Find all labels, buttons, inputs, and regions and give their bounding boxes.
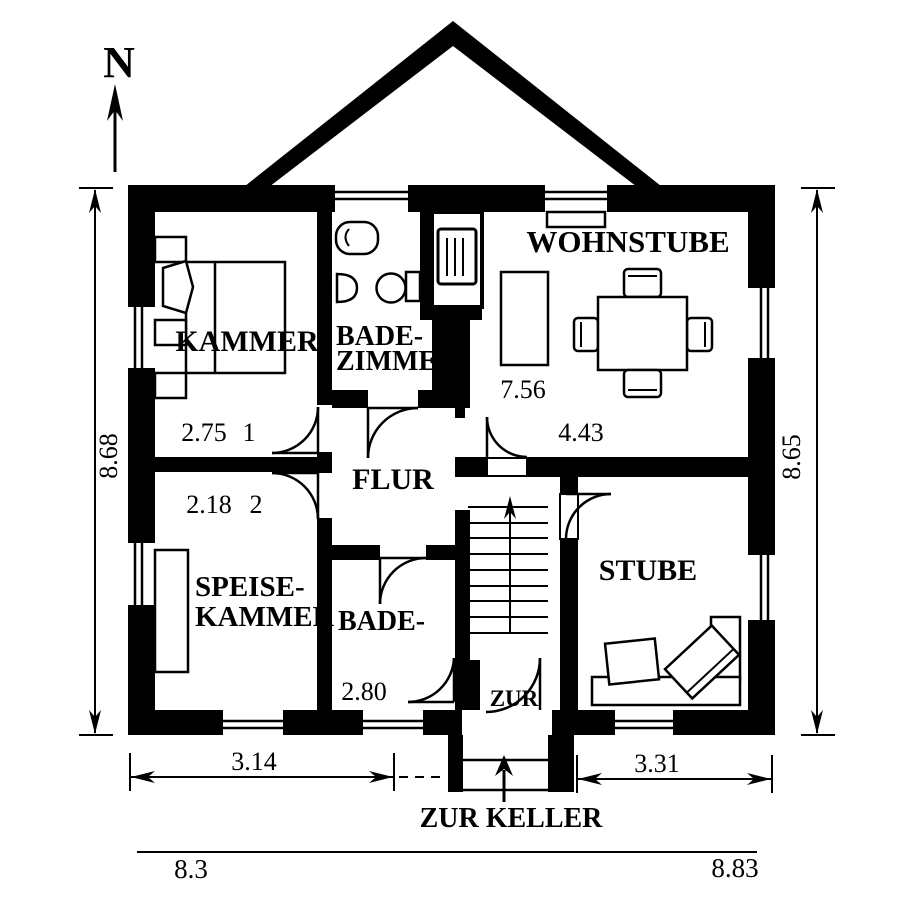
dim-bottom-right: 3.31: [634, 749, 680, 778]
label-stube: STUBE: [599, 554, 697, 587]
dim-right-height: 8.65: [777, 434, 806, 480]
chair-top: [624, 269, 661, 297]
porch: [448, 735, 574, 802]
label-speisekammer-1: SPEISE-: [195, 571, 305, 603]
window-right-wohnstube: [748, 288, 775, 358]
bath-cabinet: [406, 272, 420, 301]
pillow: [163, 261, 193, 313]
dim-bade: 2.80: [341, 677, 387, 706]
bathroom-fixtures: [336, 222, 420, 303]
door-badezimmer: [368, 408, 418, 458]
room-dimensions: 2.75 1 2.18 2 7.56 4.43 2.80: [181, 375, 604, 706]
door-speisekammer: [272, 473, 318, 519]
label-speisekammer-2: KAMMER: [195, 601, 335, 633]
toilet: [337, 274, 357, 302]
dim-line-bottom-left: [130, 753, 447, 791]
label-kammer: KAMMER: [175, 325, 319, 358]
tile-stove: [432, 212, 482, 307]
nightstand: [155, 237, 186, 262]
speisekammer-shelf: [155, 550, 188, 672]
dim-line-right: [801, 188, 835, 735]
dim-wohnstube-a: 7.56: [500, 375, 546, 404]
dim-bottom-left: 3.14: [231, 747, 277, 776]
window-right-stube: [748, 555, 775, 620]
sink: [377, 274, 406, 303]
chair-bottom: [624, 370, 661, 397]
window-bottom-stube: [615, 710, 673, 735]
label-zur-keller: ZUR KELLER: [420, 803, 604, 834]
dim-overall-left: 8.3: [174, 854, 208, 884]
label-wohnstube: WOHNSTUBE: [526, 224, 729, 259]
dim-kammer: 2.75: [181, 418, 227, 447]
window-top-wohnstube: [545, 185, 607, 227]
chair-right: [687, 318, 712, 351]
north-label: N: [103, 38, 135, 87]
window-top-bath: [335, 185, 408, 212]
north-arrow: N: [103, 38, 135, 172]
dim-overall-right: 8.83: [711, 853, 758, 883]
chair-left: [574, 318, 598, 351]
num-speisekammer: 2: [250, 490, 263, 519]
roof-gable: [240, 21, 666, 190]
dim-left-height: 8.68: [94, 433, 123, 479]
door-wohnstube: [487, 417, 527, 457]
bathtub: [336, 222, 378, 254]
staircase: [468, 496, 548, 633]
window-bottom-speisekammer: [223, 710, 283, 735]
dim-wohnstube-b: 4.43: [558, 418, 604, 447]
sideboard: [501, 272, 548, 365]
label-bade: BADE-: [338, 606, 425, 637]
dim-speisekammer: 2.18: [186, 490, 232, 519]
floorplan-drawing: N: [0, 0, 900, 900]
dining-table: [598, 297, 687, 370]
nightstand: [155, 373, 186, 398]
window-left-kammer: [128, 307, 155, 368]
stube-furniture: [592, 617, 740, 705]
label-badezimmer-2: ZIMMER: [336, 346, 458, 377]
door-kammer: [272, 407, 318, 453]
num-kammer: 1: [243, 418, 256, 447]
window-left-speisekammer: [128, 543, 155, 605]
floorplan-page: N: [0, 0, 900, 900]
window-bottom-bade: [363, 710, 423, 735]
door-bade-zur: [408, 658, 454, 702]
door-bade: [380, 558, 426, 604]
label-zur: ZUR: [490, 686, 539, 711]
sofa-cushion: [605, 638, 659, 684]
label-flur: FLUR: [352, 463, 434, 496]
kammer-bed: [155, 237, 285, 398]
